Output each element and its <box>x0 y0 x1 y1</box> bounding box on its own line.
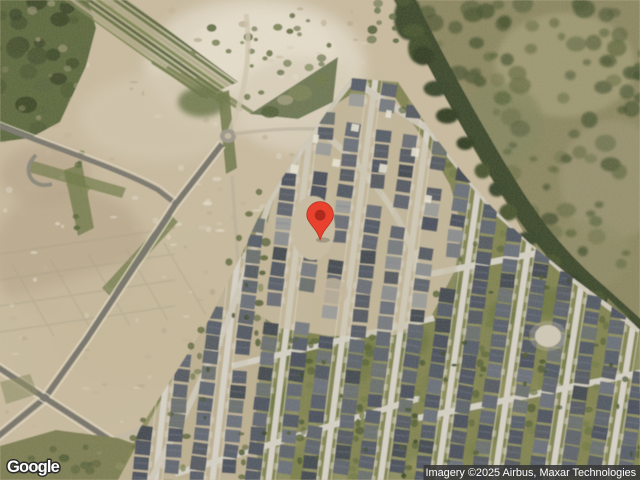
svg-text:Google: Google <box>7 458 60 476</box>
svg-text:Imagery ©2025 Airbus, Maxar Te: Imagery ©2025 Airbus, Maxar Technologies <box>426 467 637 479</box>
